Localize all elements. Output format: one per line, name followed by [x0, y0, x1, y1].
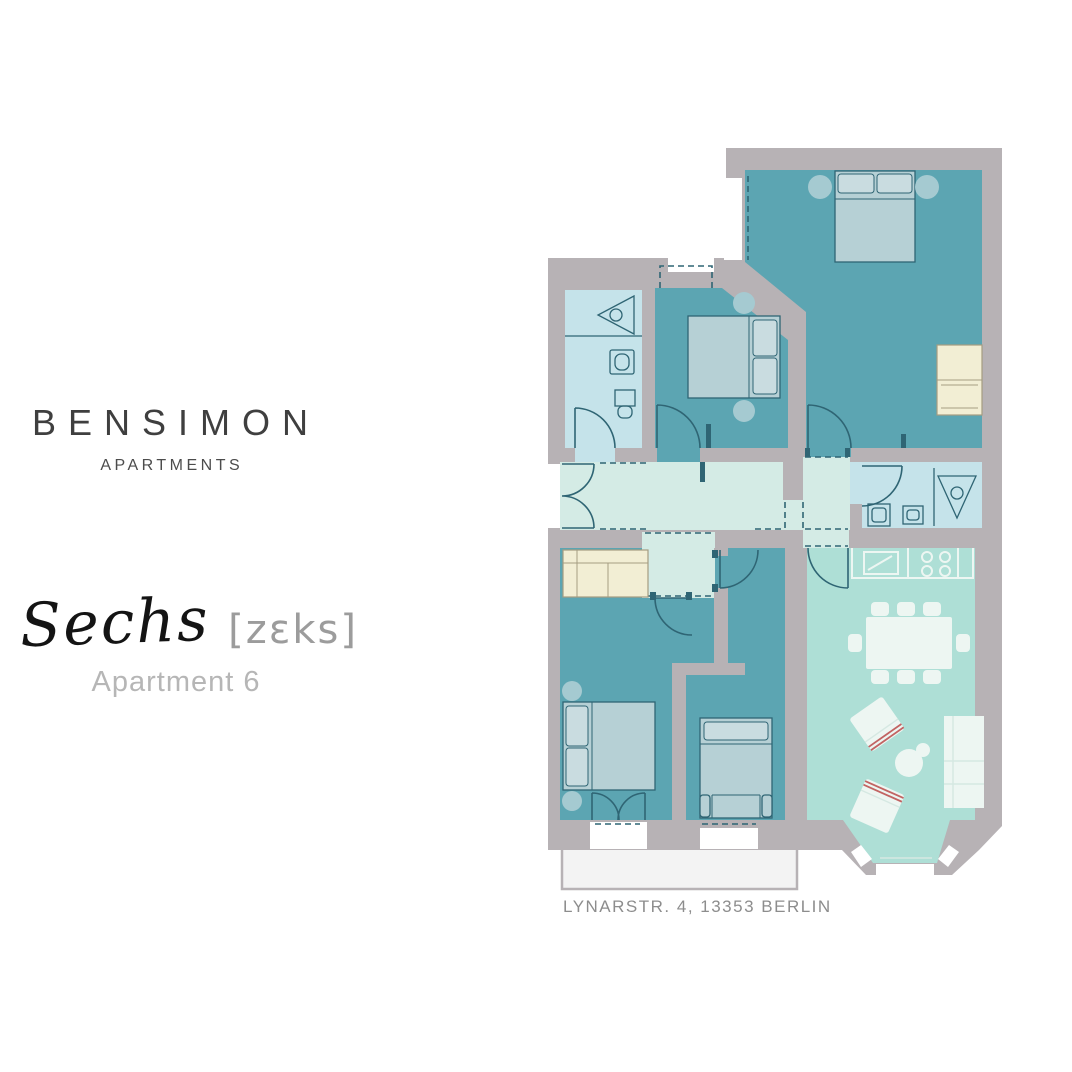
chair — [897, 602, 915, 616]
nightstand — [733, 292, 755, 314]
bathroom-2-door-opening — [850, 462, 862, 504]
window-bedroom-1 — [724, 178, 742, 260]
chair — [848, 634, 862, 652]
hallway-protrusion — [642, 532, 715, 598]
chair — [871, 602, 889, 616]
nightstand — [562, 791, 582, 811]
window-french-door — [590, 822, 647, 849]
floor-plan — [0, 0, 1072, 1072]
room-bathroom-1 — [565, 290, 642, 448]
nightstand — [562, 681, 582, 701]
balcony — [562, 848, 797, 889]
chair — [956, 634, 970, 652]
dining-table — [866, 617, 952, 669]
window-bedroom-4 — [700, 828, 758, 849]
chair — [871, 670, 889, 684]
bedroom-2-door-opening — [657, 448, 700, 462]
bedroom-1-door-opening — [808, 448, 851, 457]
nightstand — [915, 175, 939, 199]
nightstand — [808, 175, 832, 199]
bedroom-4-furniture — [700, 718, 772, 818]
chair — [897, 670, 915, 684]
nightstand — [733, 400, 755, 422]
room-bathroom-2 — [862, 462, 982, 528]
chair — [923, 670, 941, 684]
sofa — [944, 716, 984, 808]
side-table — [916, 743, 930, 757]
window-top-left — [668, 256, 714, 272]
entrance-opening — [546, 464, 560, 528]
sofa — [563, 550, 648, 597]
bathroom-1-door-opening — [575, 448, 615, 462]
address: LYNARSTR. 4, 13353 BERLIN — [563, 897, 832, 917]
chair — [923, 602, 941, 616]
room-corridor — [803, 457, 850, 530]
bay-window-center — [876, 864, 934, 875]
page: BENSIMON APARTMENTS Sechs [zɛks] Apartme… — [0, 0, 1072, 1072]
